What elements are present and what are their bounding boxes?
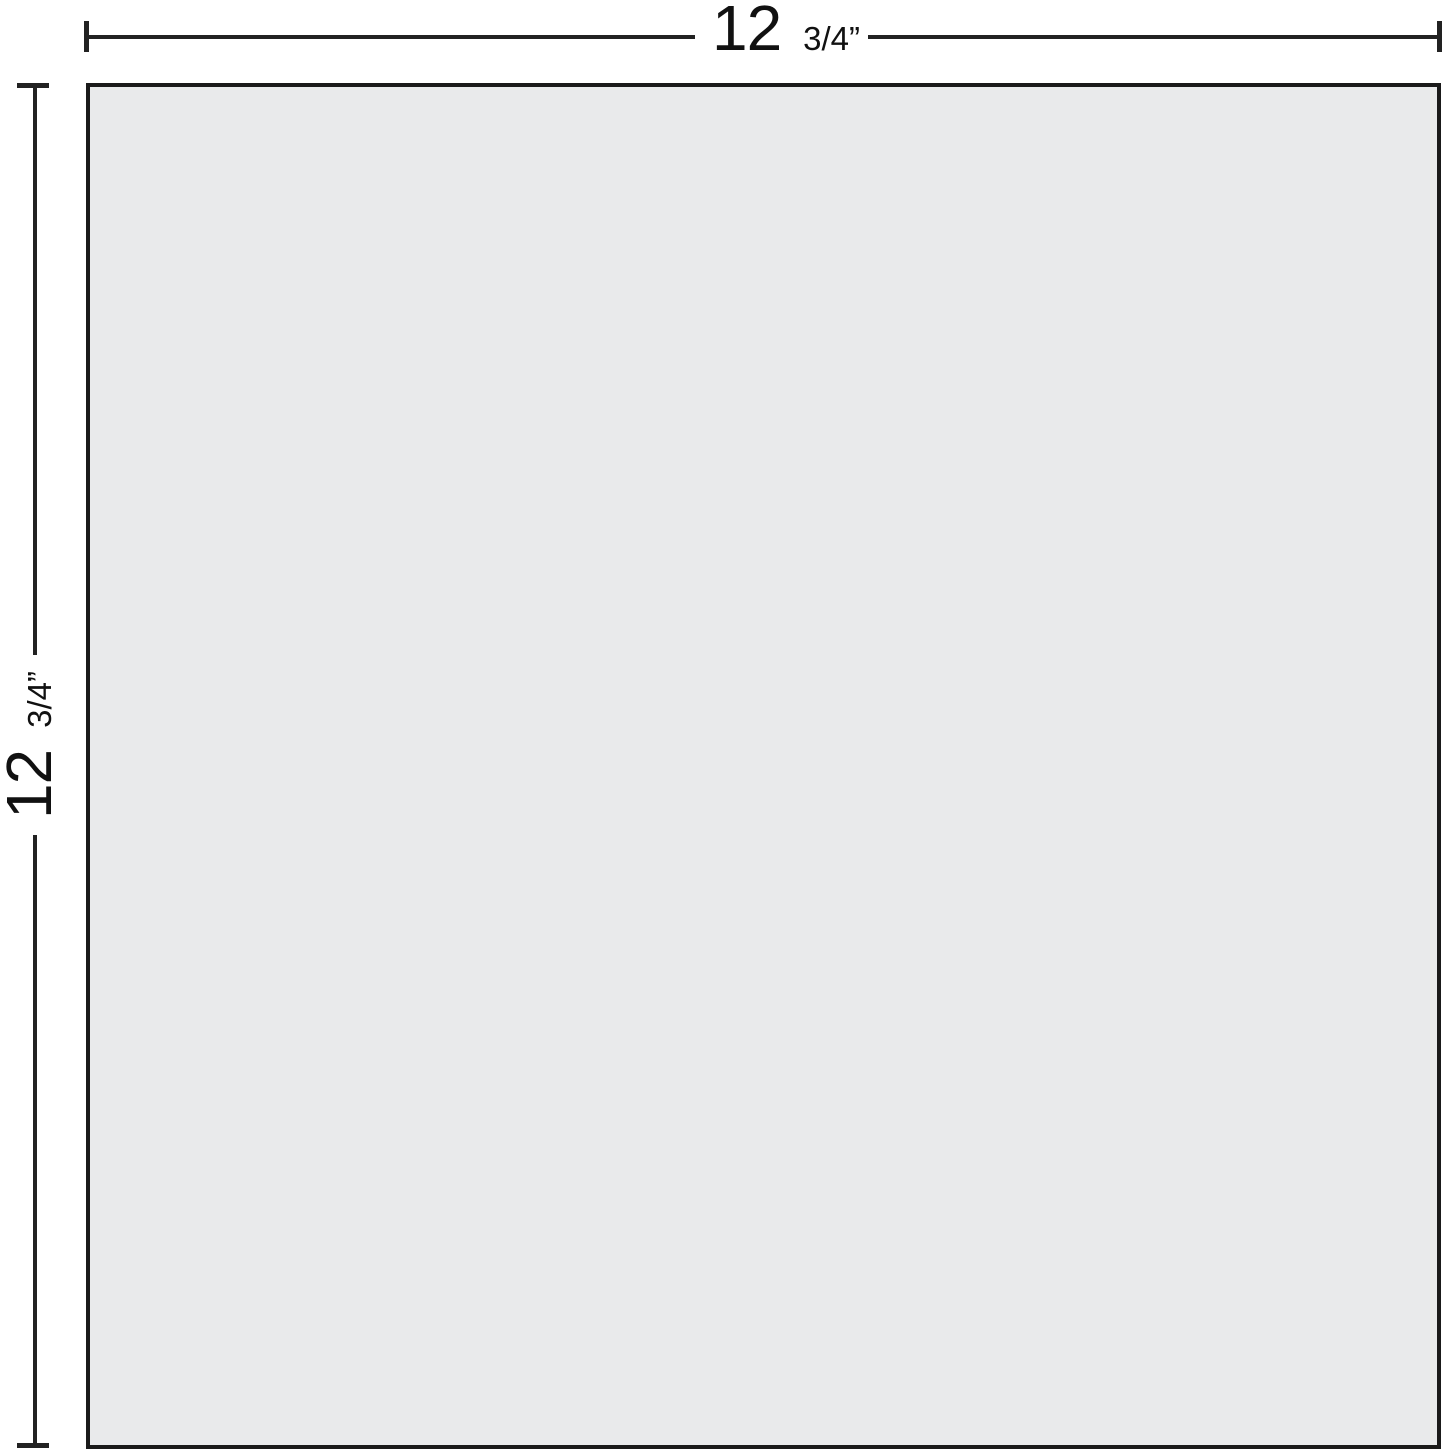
width-dimension-label: 12 3/4” [712, 0, 860, 60]
height-dimension-line-top [33, 85, 37, 655]
width-fraction: 3/4” [803, 22, 860, 55]
width-dimension-tick-right [1437, 21, 1442, 52]
panel-square [86, 83, 1441, 1449]
width-whole-number: 12 [712, 0, 781, 60]
height-whole-number: 12 [0, 750, 61, 819]
dimension-diagram: 12 3/4” 12 3/4” [0, 0, 1445, 1455]
width-dimension-line-left [86, 35, 695, 39]
height-dimension-line-bottom [33, 835, 37, 1447]
height-fraction: 3/4” [23, 671, 56, 728]
height-dimension-label: 12 3/4” [0, 671, 61, 819]
width-dimension-line-right [868, 35, 1439, 39]
height-dimension-tick-bottom [17, 1443, 49, 1448]
